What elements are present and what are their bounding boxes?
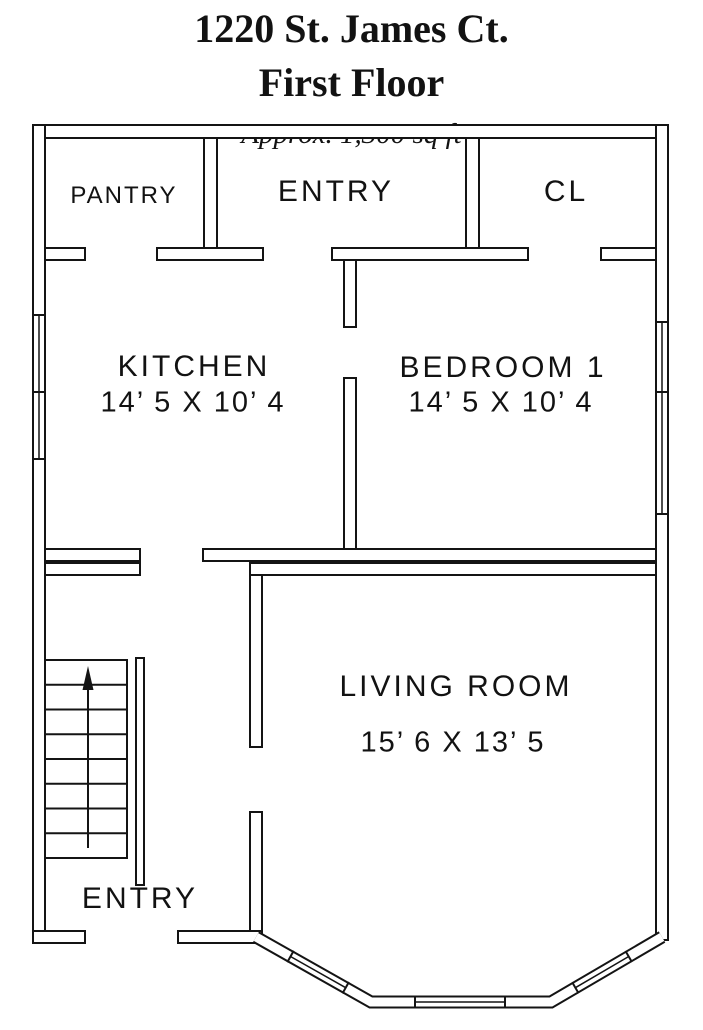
window-symbol-bay-left-glass	[291, 957, 346, 988]
floor-plan-drawing	[0, 0, 703, 1030]
room-label-closet: CL	[544, 175, 588, 209]
room-label-kitchen: KITCHEN	[118, 350, 271, 384]
wall-bottom-left-b	[178, 931, 262, 943]
floor-plan-page: 1220 St. James Ct. First Floor Approx. 1…	[0, 0, 703, 1030]
room-label-entry-bottom: ENTRY	[82, 882, 198, 916]
wall-hall-top-left	[45, 563, 140, 575]
wall-right	[656, 125, 668, 940]
room-dimensions-bedroom-1: 14’ 5 X 10’ 4	[408, 387, 593, 420]
room-label-pantry: PANTRY	[70, 182, 177, 210]
wall-kitchen-bedroom-upper	[344, 260, 356, 327]
room-dimensions-kitchen: 14’ 5 X 10’ 4	[100, 387, 285, 420]
wall-kitchen-bedroom-bottom	[203, 549, 656, 561]
wall-band-a	[45, 248, 85, 260]
room-dimensions-living-room: 15’ 6 X 13’ 5	[360, 727, 545, 760]
wall-band-b	[157, 248, 263, 260]
wall-left	[33, 125, 45, 943]
wall-hall-living-upper	[250, 575, 262, 747]
staircase	[45, 660, 127, 858]
wall-bottom-left-a	[33, 931, 85, 943]
interior-walls	[45, 138, 656, 931]
bay-wall-core	[256, 937, 662, 1002]
wall-kitchen-bottom-left	[45, 549, 140, 561]
room-label-entry-top: ENTRY	[278, 175, 394, 209]
wall-top	[33, 125, 668, 138]
wall-hall-living-lower	[250, 812, 262, 931]
wall-kitchen-bedroom-lower	[344, 378, 356, 551]
wall-band-c	[332, 248, 528, 260]
room-label-bedroom-1: BEDROOM 1	[399, 351, 606, 385]
wall-closet-left	[466, 138, 479, 250]
wall-pantry-right	[204, 138, 217, 250]
wall-band-d	[601, 248, 656, 260]
wall-living-top	[250, 563, 656, 575]
window-symbol-bay-right-glass	[575, 957, 628, 988]
wall-stair-side	[136, 658, 144, 885]
bay-window-walls	[256, 937, 662, 1002]
room-label-living-room: LIVING ROOM	[339, 670, 572, 704]
